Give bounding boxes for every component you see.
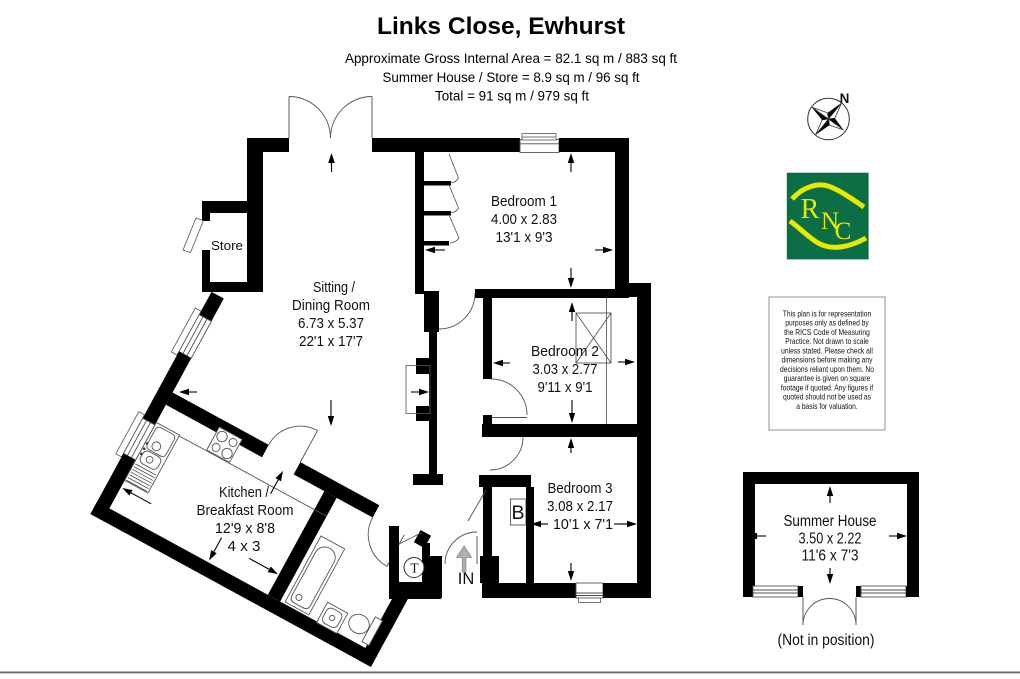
svg-text:R: R [801, 194, 820, 225]
svg-text:3.50 x 2.22: 3.50 x 2.22 [799, 531, 862, 548]
svg-text:4.00 x 2.83: 4.00 x 2.83 [491, 211, 557, 228]
svg-text:Kitchen /: Kitchen / [219, 484, 270, 501]
svg-text:9'11 x 9'1: 9'11 x 9'1 [538, 379, 593, 396]
svg-text:Store: Store [211, 238, 243, 253]
svg-text:a basis for valuation.: a basis for valuation. [796, 401, 858, 411]
svg-text:Bedroom 1: Bedroom 1 [491, 193, 557, 210]
svg-text:IN: IN [458, 570, 475, 588]
svg-text:Links Close, Ewhurst: Links Close, Ewhurst [377, 13, 625, 40]
svg-text:Bedroom 3: Bedroom 3 [548, 480, 613, 497]
svg-text:12'9 x 8'8: 12'9 x 8'8 [215, 520, 275, 537]
svg-text:Summer House / Store = 8.9 sq: Summer House / Store = 8.9 sq m / 96 sq … [383, 70, 640, 86]
svg-text:Approximate Gross Internal Are: Approximate Gross Internal Area = 82.1 s… [345, 51, 677, 67]
svg-text:(Not in position): (Not in position) [778, 632, 875, 649]
svg-text:T: T [410, 561, 419, 576]
svg-text:Breakfast Room: Breakfast Room [197, 502, 294, 519]
svg-text:6.73 x 5.37: 6.73 x 5.37 [298, 315, 364, 332]
svg-text:3.03 x 2.77: 3.03 x 2.77 [533, 361, 598, 378]
svg-text:N: N [840, 91, 850, 106]
svg-text:11'6 x 7'3: 11'6 x 7'3 [802, 548, 859, 565]
svg-text:10'1 x 7'1: 10'1 x 7'1 [553, 516, 613, 533]
svg-text:22'1 x 17'7: 22'1 x 17'7 [299, 333, 363, 350]
svg-text:Sitting /: Sitting / [313, 279, 356, 296]
svg-text:Dining Room: Dining Room [292, 297, 370, 314]
svg-text:Summer House: Summer House [784, 513, 877, 530]
svg-text:3.08 x 2.17: 3.08 x 2.17 [547, 498, 613, 515]
svg-text:B: B [511, 502, 524, 524]
svg-text:Total = 91 sq m / 979 sq ft: Total = 91 sq m / 979 sq ft [435, 89, 589, 105]
svg-text:13'1 x 9'3: 13'1 x 9'3 [496, 229, 553, 246]
svg-text:Bedroom 2: Bedroom 2 [531, 343, 599, 360]
svg-text:4 x 3: 4 x 3 [228, 538, 261, 555]
svg-text:C: C [835, 218, 852, 245]
